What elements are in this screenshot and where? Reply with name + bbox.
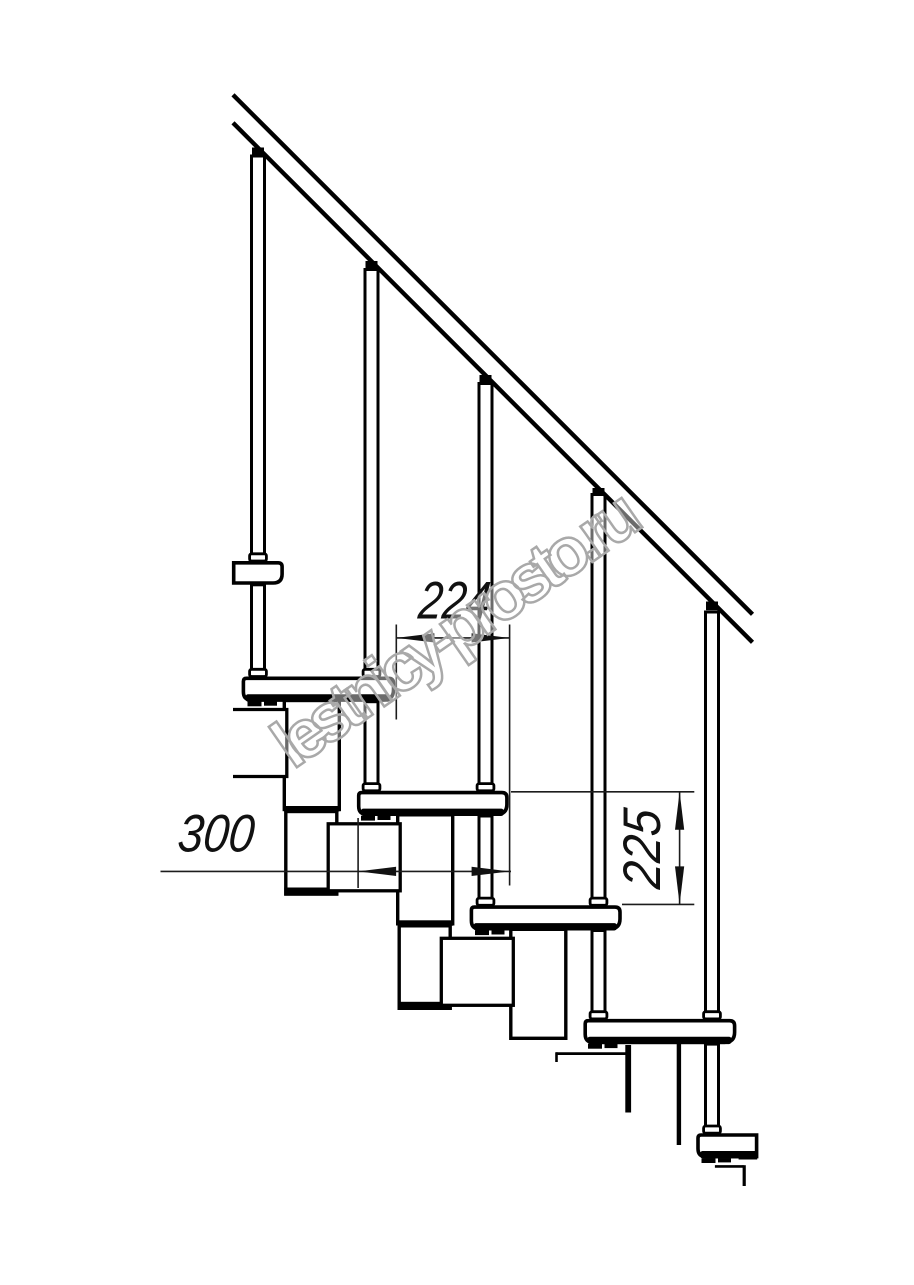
svg-text:300: 300 (175, 805, 258, 864)
svg-text:225: 225 (613, 805, 672, 891)
